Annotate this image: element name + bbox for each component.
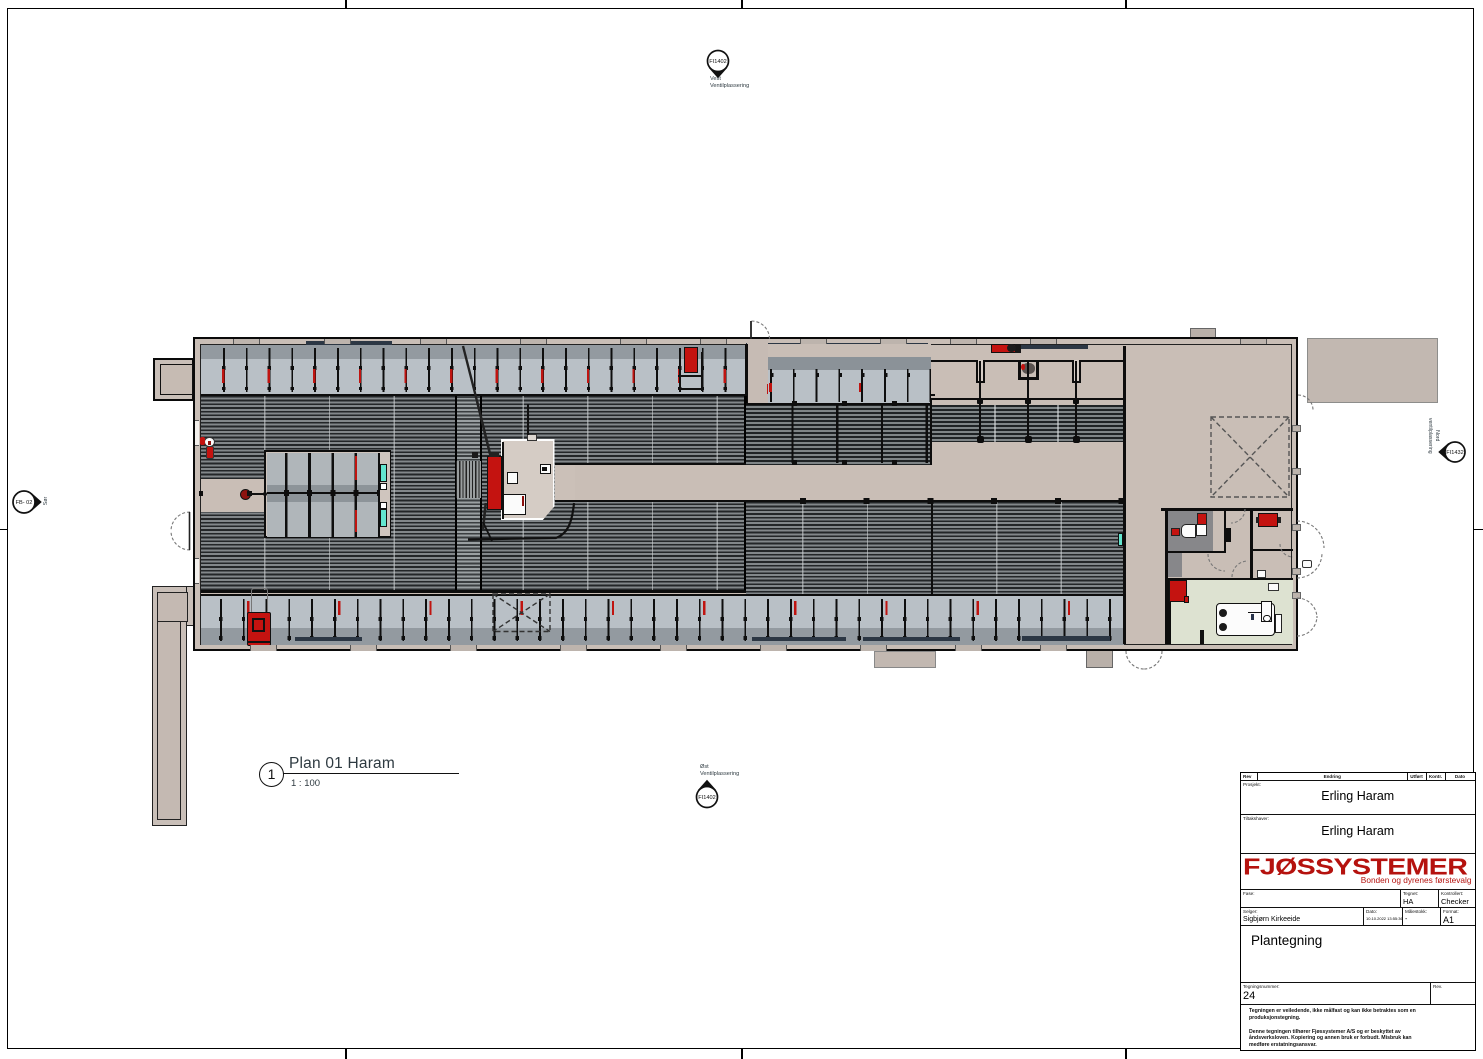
svg-text:FB- 02: FB- 02 [16, 500, 33, 506]
svg-text:FI1402: FI1402 [709, 59, 726, 65]
svg-text:FI1432: FI1432 [1446, 450, 1463, 456]
svg-text:FI1402: FI1402 [698, 795, 715, 801]
